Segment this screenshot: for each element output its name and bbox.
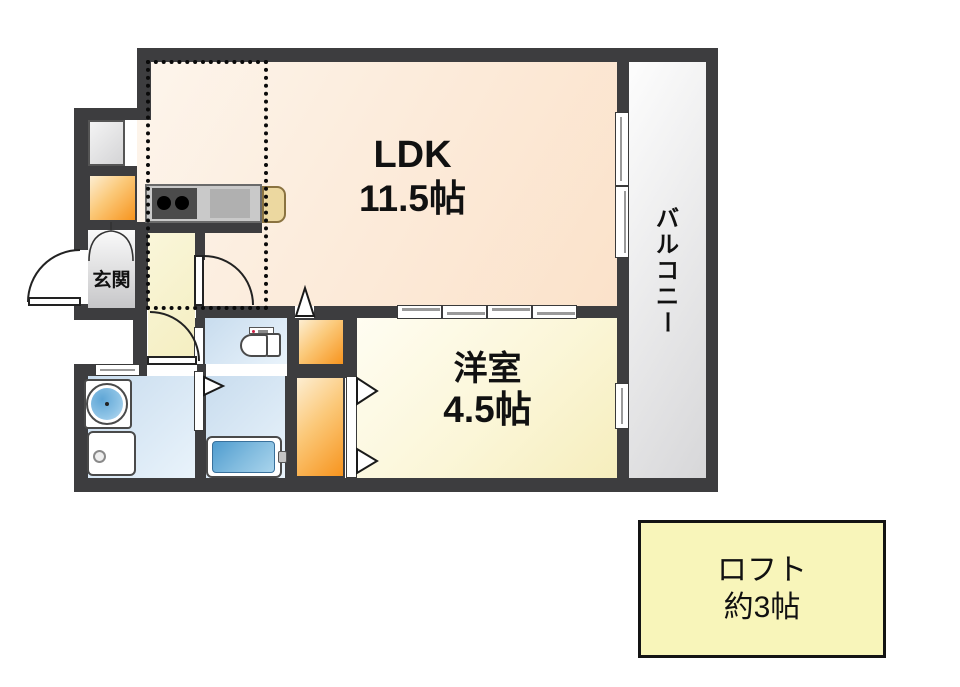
window-glass-line bbox=[621, 388, 623, 424]
washroom-door-leaf bbox=[147, 356, 197, 365]
sliding-panel-line bbox=[447, 312, 485, 315]
ldk-balcony-window-pane bbox=[615, 186, 629, 258]
wall bbox=[133, 308, 147, 366]
wall bbox=[706, 48, 718, 492]
ldk-balcony-window-pane bbox=[615, 112, 629, 186]
washing-machine-knob bbox=[93, 450, 106, 463]
closet-folding-door bbox=[346, 376, 357, 478]
loft-area-outline bbox=[146, 60, 268, 310]
ldk-name: LDK bbox=[295, 134, 530, 178]
loft-size: 約3帖 bbox=[724, 589, 801, 626]
window-glass-line bbox=[620, 117, 622, 181]
wall bbox=[576, 306, 617, 318]
storage-box bbox=[88, 120, 125, 166]
sliding-panel-divider bbox=[531, 306, 533, 318]
toilet-bowl bbox=[240, 334, 268, 357]
ldk-size: 11.5帖 bbox=[295, 178, 530, 221]
front-door-leaf bbox=[28, 297, 81, 306]
toilet-panel-light bbox=[252, 330, 255, 333]
bathroom-folding-door bbox=[194, 371, 204, 431]
sliding-panel-line bbox=[402, 308, 440, 311]
wall bbox=[74, 478, 718, 492]
entrance-closet bbox=[88, 174, 137, 222]
closet-upper bbox=[297, 318, 345, 366]
entrance-label: 玄関 bbox=[88, 265, 135, 292]
bedroom-size: 4.5帖 bbox=[380, 389, 595, 432]
bath-faucet bbox=[278, 451, 287, 463]
ldk-label: LDK 11.5帖 bbox=[295, 134, 530, 220]
wall bbox=[285, 376, 295, 481]
balcony-char: ニ bbox=[656, 283, 679, 309]
loft-legend-box: ロフト 約3帖 bbox=[638, 520, 886, 658]
wall bbox=[345, 306, 357, 378]
bedroom-name: 洋室 bbox=[380, 350, 595, 389]
sliding-panel-divider bbox=[486, 306, 488, 318]
wall bbox=[88, 166, 137, 174]
loft-name: ロフト bbox=[717, 552, 807, 589]
floorplan-canvas: LDK 11.5帖 洋室 4.5帖 バ ル コ ニ ー 玄関 ロフト 約3帖 bbox=[0, 0, 960, 687]
wall bbox=[287, 318, 297, 366]
balcony-char: コ bbox=[656, 257, 679, 283]
bedroom-label: 洋室 4.5帖 bbox=[380, 350, 595, 432]
balcony-char: ー bbox=[655, 311, 681, 334]
balcony-char: ル bbox=[656, 231, 679, 257]
wall bbox=[88, 222, 137, 230]
balcony-label: バ ル コ ニ ー bbox=[629, 205, 706, 365]
window-glass-line bbox=[100, 369, 135, 371]
bathtub-water bbox=[212, 441, 275, 473]
sliding-panel-line bbox=[492, 308, 530, 311]
front-door-swing-arc bbox=[28, 250, 80, 302]
washbasin-drain bbox=[105, 402, 109, 406]
washroom-door-opening bbox=[147, 365, 197, 376]
sliding-panel-divider bbox=[441, 306, 443, 318]
window-glass-line bbox=[624, 191, 626, 253]
front-door-opening bbox=[74, 250, 88, 304]
balcony-char: バ bbox=[656, 205, 679, 231]
closet-lower bbox=[295, 376, 345, 478]
sliding-panel-line bbox=[537, 312, 575, 315]
